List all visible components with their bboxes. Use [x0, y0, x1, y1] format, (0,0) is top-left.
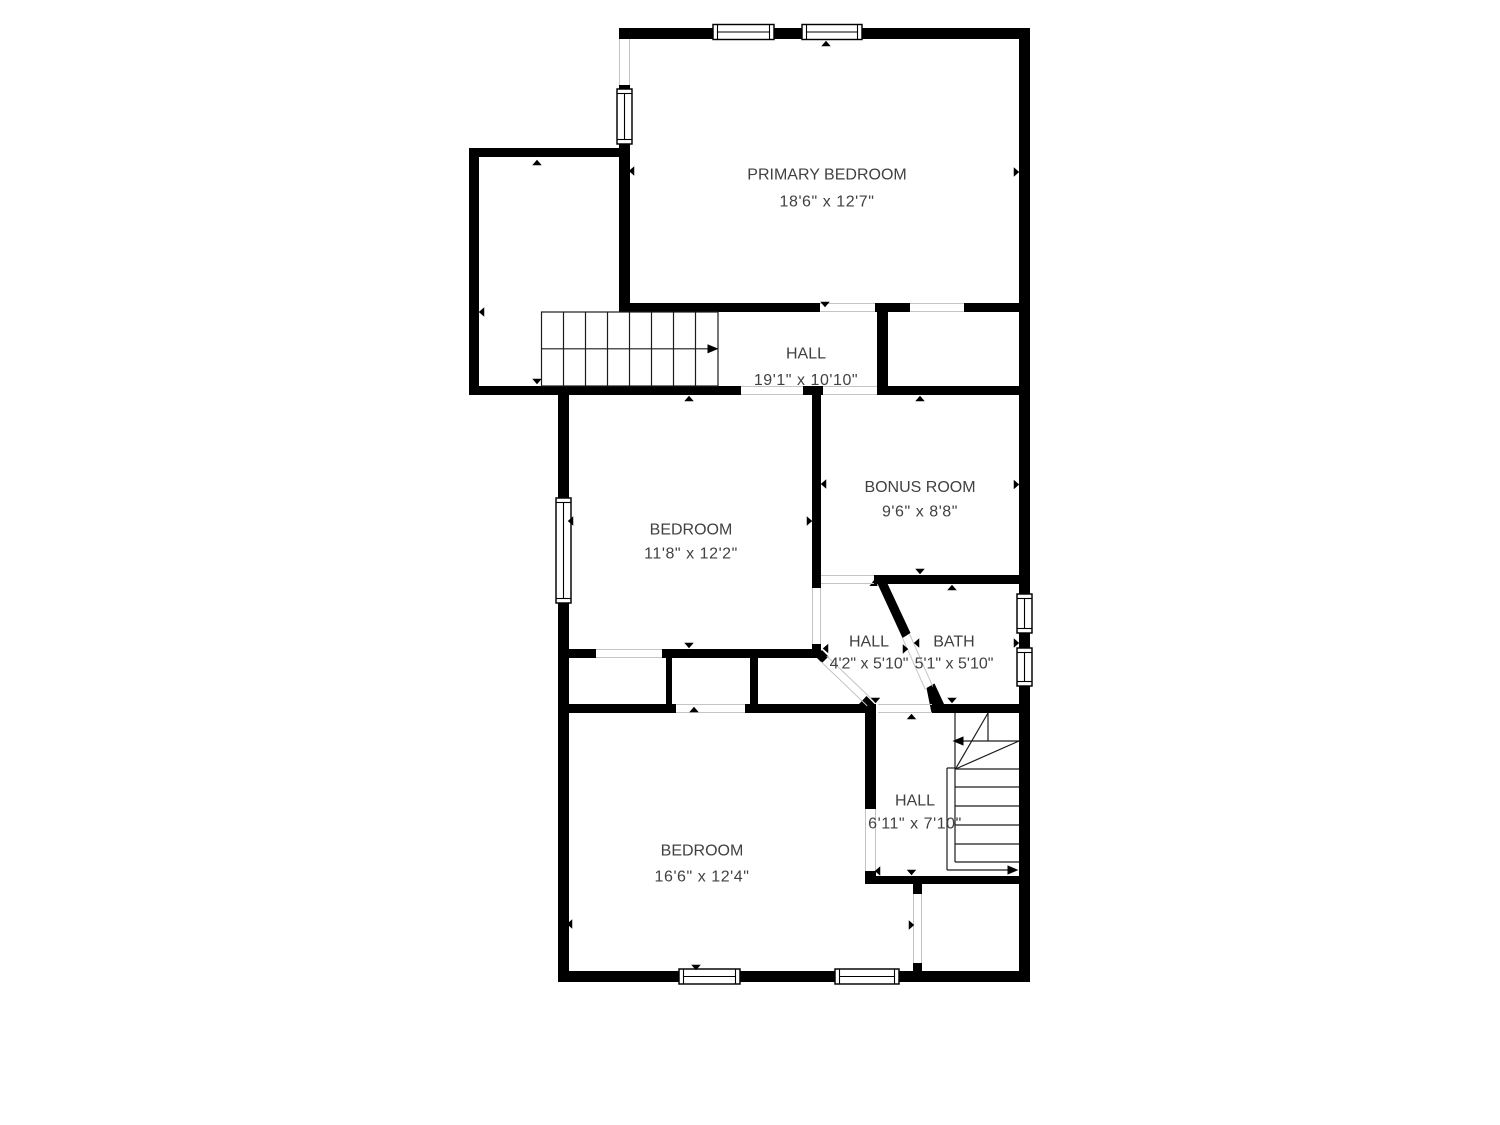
svg-text:HALL: HALL: [786, 346, 826, 363]
svg-text:16'6" x 12'4": 16'6" x 12'4": [655, 869, 750, 886]
svg-text:HALL: HALL: [895, 793, 935, 810]
svg-text:BONUS ROOM: BONUS ROOM: [864, 479, 975, 496]
svg-text:4'2" x 5'10": 4'2" x 5'10": [830, 656, 909, 673]
svg-text:6'11" x 7'10": 6'11" x 7'10": [868, 816, 962, 833]
svg-text:18'6" x 12'7": 18'6" x 12'7": [780, 194, 875, 211]
svg-text:BATH: BATH: [933, 634, 974, 651]
svg-text:HALL: HALL: [849, 634, 889, 651]
svg-text:PRIMARY BEDROOM: PRIMARY BEDROOM: [747, 167, 906, 184]
svg-text:19'1" x 10'10": 19'1" x 10'10": [754, 372, 858, 389]
svg-text:BEDROOM: BEDROOM: [650, 522, 733, 539]
svg-text:BEDROOM: BEDROOM: [661, 843, 744, 860]
svg-text:9'6" x 8'8": 9'6" x 8'8": [882, 504, 958, 521]
svg-text:11'8" x 12'2": 11'8" x 12'2": [644, 546, 738, 563]
svg-text:5'1" x 5'10": 5'1" x 5'10": [915, 656, 994, 673]
